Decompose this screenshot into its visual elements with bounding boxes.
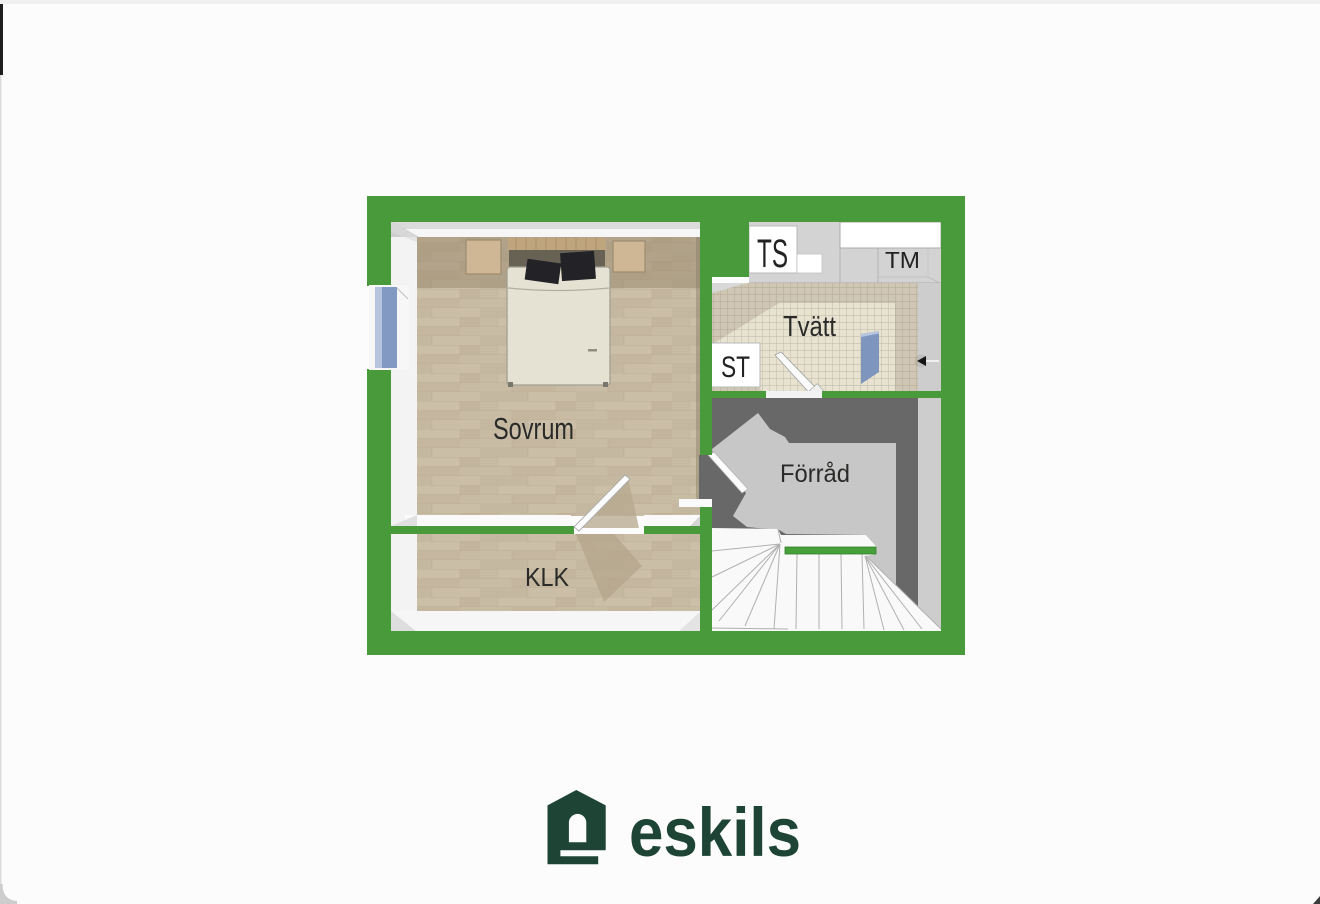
svg-text:Tvätt: Tvätt	[783, 311, 836, 343]
svg-text:KLK: KLK	[525, 562, 570, 592]
svg-text:eskils: eskils	[629, 794, 801, 871]
svg-text:ST: ST	[721, 351, 750, 384]
svg-text:TM: TM	[885, 247, 920, 273]
svg-text:Sovrum: Sovrum	[493, 411, 574, 446]
svg-text:TS: TS	[757, 232, 788, 276]
svg-text:Förråd: Förråd	[780, 460, 850, 488]
